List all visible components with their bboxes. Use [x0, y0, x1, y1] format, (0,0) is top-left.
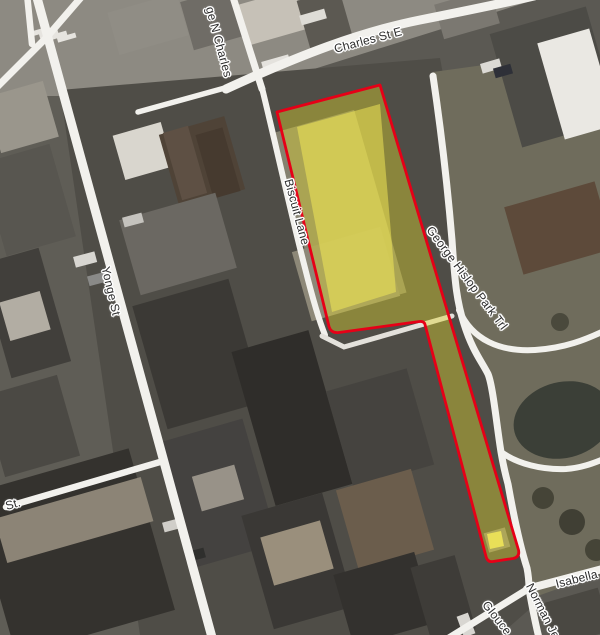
- aerial-map[interactable]: Charles St E ge N Charles Biscuit Lane Y…: [0, 0, 600, 635]
- parcel-building-footprint-small: [487, 531, 504, 549]
- map-graphics: [0, 0, 600, 635]
- tree: [551, 313, 569, 331]
- building-roof: [540, 588, 600, 635]
- tree: [532, 487, 554, 509]
- tree: [559, 509, 585, 535]
